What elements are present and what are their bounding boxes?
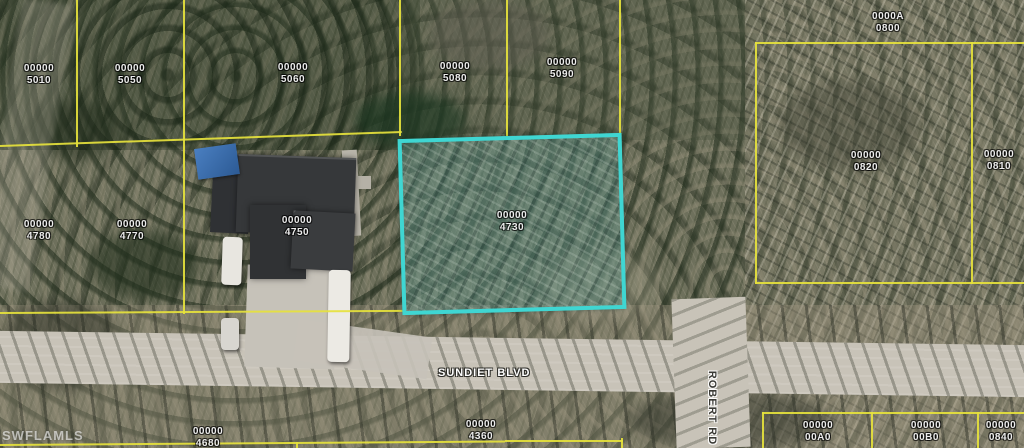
mls-watermark: SWFLAMLS xyxy=(2,428,84,443)
parcel-boundary-line xyxy=(871,412,873,448)
parcel-label: 00000 5080 xyxy=(440,61,470,85)
parcel-label: 00000 00B0 xyxy=(911,420,941,444)
parcel-label: 00000 4680 xyxy=(193,426,223,448)
aerial-parcel-map: 00000 5010 00000 5050 00000 5060 00000 5… xyxy=(0,0,1024,448)
parcel-label: 0000A 0800 xyxy=(872,11,904,35)
rv-trailer xyxy=(327,270,351,362)
parcel-boundary-line xyxy=(755,282,1024,284)
parcel-label: 00000 5010 xyxy=(24,63,54,87)
parcel-boundary-line xyxy=(183,0,185,314)
parcel-boundary-line xyxy=(755,42,1024,44)
parcel-boundary-line xyxy=(977,412,979,448)
parcel-boundary-line xyxy=(505,440,623,442)
parcel-label: 00000 5060 xyxy=(278,62,308,86)
parcel-boundary-line xyxy=(399,0,401,136)
parcel-label: 00000 5050 xyxy=(115,63,145,87)
tree-clump xyxy=(430,0,550,70)
parcel-boundary-line xyxy=(762,412,1024,414)
parcel-label: 00000 4780 xyxy=(24,219,54,243)
parcel-boundary-line xyxy=(762,412,764,448)
street-label-sundiet-blvd: SUNDIET BLVD xyxy=(438,367,530,379)
white-van xyxy=(221,237,243,286)
parcel-label: 00000 0810 xyxy=(984,149,1014,173)
parcel-boundary-line xyxy=(621,438,623,448)
parcel-label: 00000 00A0 xyxy=(803,420,833,444)
parcel-boundary-line xyxy=(755,42,757,284)
parcel-boundary-line xyxy=(296,442,298,448)
parcel-label: 00000 0820 xyxy=(851,150,881,174)
concrete-pad xyxy=(355,176,371,189)
parcel-label: 00000 4770 xyxy=(117,219,147,243)
parcel-label: 00000 4750 xyxy=(282,215,312,239)
street-label-robert-rd: ROBERT RD xyxy=(706,371,718,445)
parcel-boundary-line xyxy=(971,42,973,284)
parcel-label-highlighted: 00000 4730 xyxy=(497,210,527,234)
white-car xyxy=(221,318,239,350)
parcel-label: 00000 5090 xyxy=(547,57,577,81)
parcel-boundary-line xyxy=(76,0,78,147)
parcel-boundary-line xyxy=(619,0,621,136)
parcel-boundary-line xyxy=(506,0,508,136)
blue-tarp xyxy=(194,143,240,180)
parcel-label: 00000 4360 xyxy=(466,419,496,443)
parcel-label: 00000 0840 xyxy=(986,420,1016,444)
